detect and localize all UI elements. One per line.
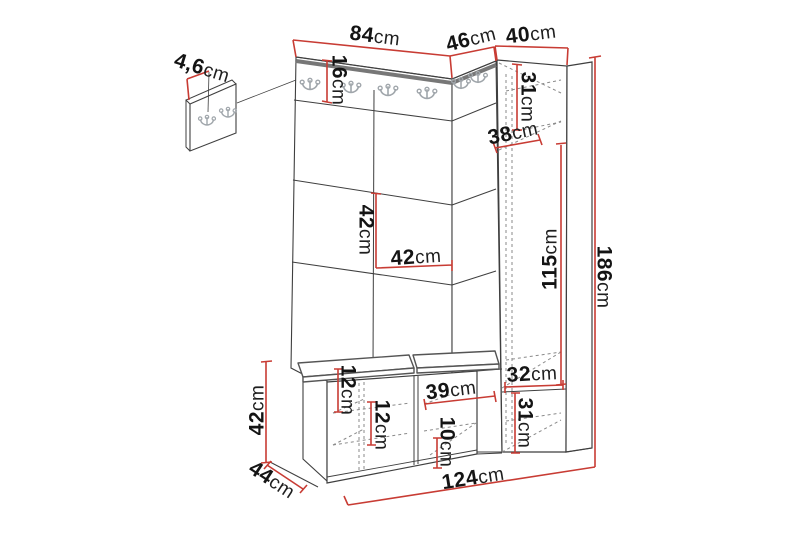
dim-line-bench-depth <box>264 461 307 493</box>
dim-line-top-corner-width <box>450 47 496 61</box>
dim-line-hook-panel-depth <box>187 71 209 100</box>
furniture-line-drawing <box>0 0 800 533</box>
wall-hook-panel <box>186 72 296 151</box>
dim-line-bench-height <box>261 361 272 463</box>
diagram-stage: 84cm 46cm 40cm 4,6cm 16cm 31cm 38cm 42cm… <box>0 0 800 533</box>
bench <box>303 369 502 483</box>
